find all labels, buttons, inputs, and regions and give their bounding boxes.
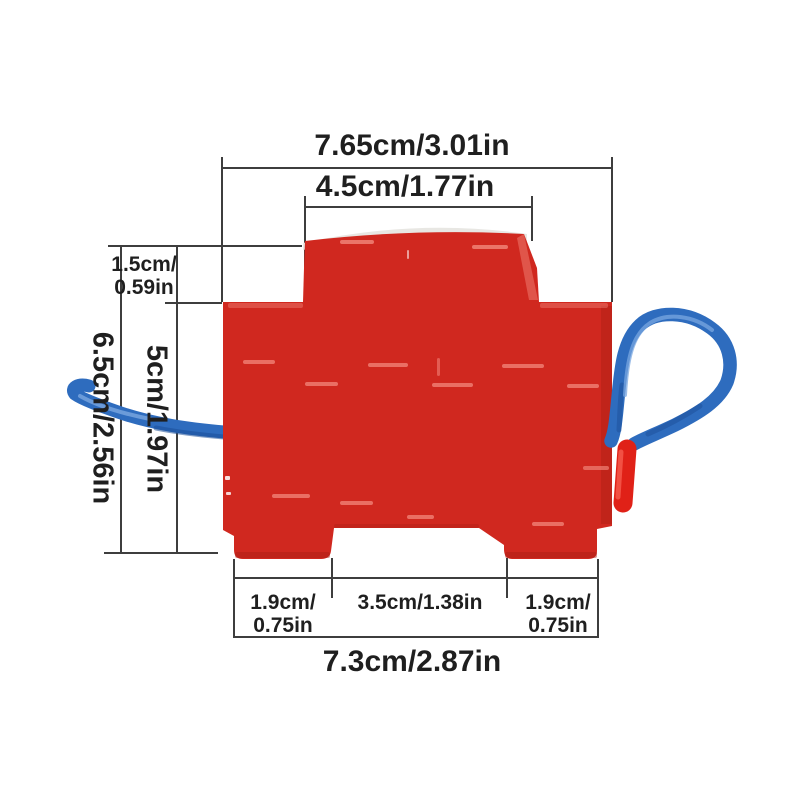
dim-label-foot-gap: 3.5cm/1.38in — [334, 591, 506, 614]
dim-label-cap-height-line1: 1.5cm/ — [100, 253, 188, 276]
mold-dash — [502, 364, 544, 368]
dim-label-foot-right-line1: 1.9cm/ — [508, 591, 608, 614]
mold-dash — [567, 384, 599, 388]
dim-label-foot-right: 1.9cm/ 0.75in — [508, 591, 608, 637]
dim-label-foot-left-line1: 1.9cm/ — [233, 591, 333, 614]
device — [223, 228, 612, 559]
mold-dash — [368, 363, 408, 367]
dim-label-cap-height-line2: 0.59in — [100, 276, 188, 299]
speck — [226, 492, 231, 495]
mold-seam — [437, 358, 440, 376]
diagram-canvas — [0, 0, 800, 800]
mold-dash — [340, 240, 374, 244]
mold-dash — [305, 382, 338, 386]
device-shade-notch — [334, 524, 479, 528]
speck — [407, 250, 409, 259]
sleeve-highlight — [618, 452, 621, 497]
wire-right-shadow — [619, 385, 700, 434]
mold-dash — [432, 383, 473, 387]
mold-dash — [583, 466, 609, 470]
dim-label-foot-left-line2: 0.75in — [233, 614, 333, 637]
speck — [225, 476, 230, 480]
dim-label-foot-right-line2: 0.75in — [508, 614, 608, 637]
dim-label-bottom-width: 7.3cm/2.87in — [252, 645, 572, 678]
wire-end-sleeve — [618, 449, 627, 503]
mold-dash — [272, 494, 310, 498]
mold-dash — [243, 360, 275, 364]
device-body — [223, 302, 612, 559]
device-shoulder-bevel-left — [228, 303, 303, 308]
dim-label-foot-left: 1.9cm/ 0.75in — [233, 591, 333, 637]
dim-label-body-height: 5cm/1.97in — [140, 345, 173, 493]
mold-dash — [532, 522, 564, 526]
dim-label-top-width: 7.65cm/3.01in — [252, 129, 572, 162]
dim-label-cap-width: 4.5cm/1.77in — [245, 170, 565, 203]
dim-label-total-height: 6.5cm/2.56in — [86, 332, 119, 505]
mold-dash — [472, 245, 508, 249]
mold-dash — [407, 515, 434, 519]
device-shade-foot-right — [505, 552, 597, 558]
device-shoulder-bevel-right — [540, 303, 608, 308]
sleeve-body — [623, 449, 627, 503]
product-dimension-figure: 7.65cm/3.01in 4.5cm/1.77in 1.5cm/ 0.59in… — [0, 0, 800, 800]
device-cap — [303, 232, 539, 302]
device-shade-foot-left — [235, 552, 330, 558]
dim-label-cap-height: 1.5cm/ 0.59in — [100, 253, 188, 299]
wire-right — [611, 314, 730, 444]
mold-dash — [340, 501, 373, 505]
